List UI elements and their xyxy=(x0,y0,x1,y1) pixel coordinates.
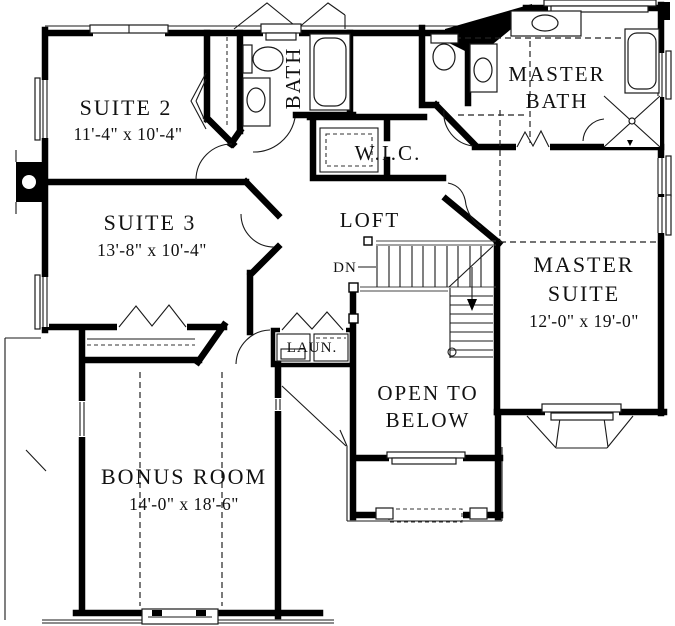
shower-door-arc xyxy=(583,119,604,141)
hall-bath-toilet xyxy=(243,45,283,73)
loft-label: LOFT xyxy=(340,208,401,232)
master-bath-vanity xyxy=(511,11,581,36)
stair-winder-line xyxy=(449,246,493,287)
window-bonus-bottom xyxy=(142,609,218,624)
suite3-dims: 13'-8" x 10'-4" xyxy=(97,240,207,260)
master-suite-label-2: SUITE xyxy=(548,281,620,306)
master-suite-dims: 12'-0" x 19'-0" xyxy=(529,311,639,331)
stair-post xyxy=(349,314,358,323)
stair-newel-curl xyxy=(448,348,456,356)
window-master-suite-bay xyxy=(542,404,621,420)
suite3-label: SUITE 3 xyxy=(104,210,197,235)
bonus-label: BONUS ROOM xyxy=(101,464,267,489)
master-bath-sink-left xyxy=(470,44,497,92)
suite2-door-arc xyxy=(196,144,232,180)
master-suite-label-1: MASTER xyxy=(533,252,634,277)
laundry-label: LAUN. xyxy=(287,340,337,356)
master-bath-shower xyxy=(604,96,660,147)
floor-plan-svg: SUITE 2 11'-4" x 10'-4" BATH W.I.C. MAST… xyxy=(0,0,675,626)
stair-post xyxy=(349,283,358,292)
stair-post xyxy=(364,237,372,245)
hall-bath-tub xyxy=(310,34,350,110)
chimney xyxy=(16,162,48,202)
open-below-label-2: BELOW xyxy=(386,408,471,432)
bonus-ceiling-lines xyxy=(140,372,222,606)
dn-label: DN xyxy=(333,260,357,276)
window-suite2-top xyxy=(90,25,168,33)
window-master-bath-bay xyxy=(544,0,656,12)
hall-bath-sink xyxy=(243,78,270,126)
suite2-label: SUITE 2 xyxy=(80,95,173,120)
master-bath-label-2: BATH xyxy=(526,89,589,113)
floor-plan: SUITE 2 11'-4" x 10'-4" BATH W.I.C. MAST… xyxy=(0,0,675,626)
master-bath-label-1: MASTER xyxy=(508,62,605,86)
bonus-door-arc xyxy=(236,330,270,364)
open-below-label-1: OPEN TO xyxy=(377,381,478,405)
suite3-door-arc xyxy=(241,214,274,247)
master-wc-toilet xyxy=(431,34,458,70)
closet-rod-lines xyxy=(87,37,346,345)
stairs xyxy=(349,237,496,358)
chimney-flue xyxy=(22,175,36,189)
stair-treads-upper xyxy=(377,246,481,287)
suite2-dims: 11'-4" x 10'-4" xyxy=(73,124,182,144)
corner-post xyxy=(658,2,670,20)
window-open-below xyxy=(387,452,465,464)
bath-label: BATH xyxy=(281,47,305,110)
window-dormer xyxy=(261,24,301,40)
stair-rails xyxy=(360,241,496,291)
bonus-dims: 14'-0" x 18'-6" xyxy=(129,494,239,514)
wic-label: W.I.C. xyxy=(355,141,422,165)
master-bath-tub xyxy=(625,29,659,93)
